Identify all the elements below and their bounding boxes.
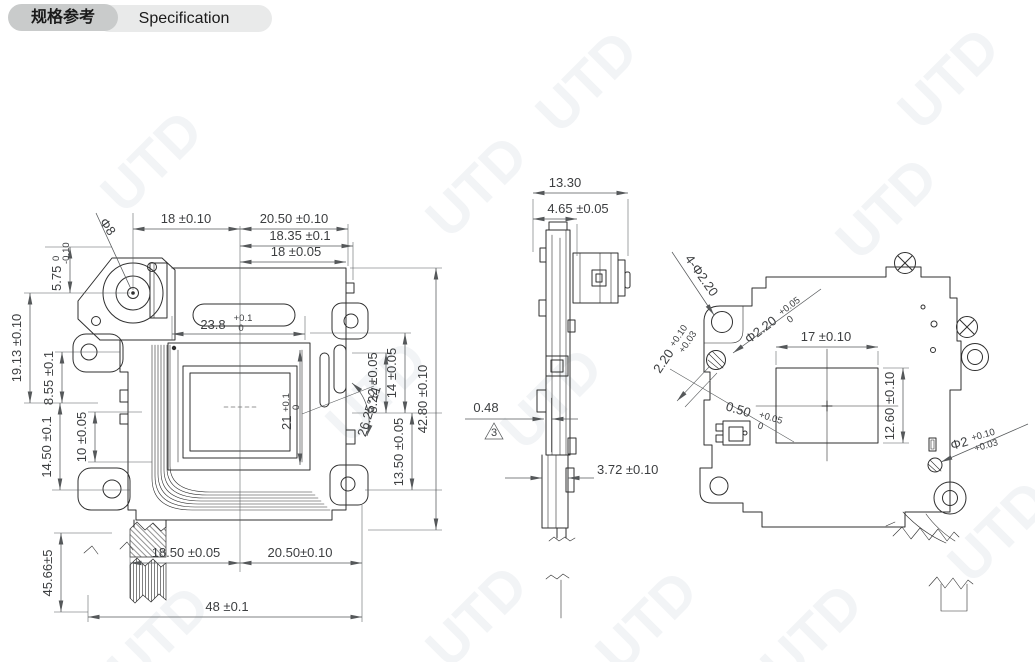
screw-top <box>895 253 916 274</box>
dim-back-050-lo: 0 <box>756 421 764 433</box>
ear-bottom-left <box>78 468 130 510</box>
dim-left-10: 10 ±0.05 <box>74 412 89 463</box>
dim-left-855: 8.55 ±0.1 <box>41 351 56 405</box>
dim-left-575-lo: -0.10 <box>61 242 72 264</box>
dim-side-372: 3.72 ±0.10 <box>597 462 658 477</box>
dim-left-1450: 14.50 ±0.1 <box>39 416 54 477</box>
watermark: UTD <box>583 558 709 662</box>
ear-hole-bottom-left <box>710 477 728 495</box>
dim-back-phi220: Φ2.20 <box>742 313 780 346</box>
dim-side-048: 0.48 <box>473 400 498 415</box>
side-motor <box>573 253 630 303</box>
engineering-drawing: UTD UTD UTD UTD UTD UTD UTD UTD UTD UTD … <box>0 0 1035 662</box>
dim-mid-21: 21 <box>279 416 294 430</box>
pin-hole-hatched <box>707 351 726 370</box>
dim-bot-1850: 18.50 ±0.05 <box>152 545 221 560</box>
watermark: UTD <box>523 18 649 144</box>
dim-back-1260: 12.60 ±0.10 <box>882 372 897 441</box>
watermark: UTD <box>88 98 214 224</box>
connector <box>716 421 750 445</box>
ear-bottom-right <box>330 465 368 505</box>
motor-bracket <box>78 258 175 340</box>
back-view-labels: 4-Φ2.20 Φ2.20 +0.05 0 2.20 +0.10 +0.03 1… <box>650 252 999 461</box>
dim-phi8: Φ8 <box>97 215 119 238</box>
screw-right <box>957 317 978 338</box>
dim-top-18: 18 ±0.10 <box>161 211 212 226</box>
flex-ribbon <box>152 345 330 510</box>
dim-mid-21-lo: 0 <box>291 405 302 410</box>
dim-side-1330: 13.30 <box>549 175 582 190</box>
watermark: UTD <box>823 145 949 271</box>
datum-3-label: 3 <box>491 427 497 439</box>
dim-back-17: 17 ±0.10 <box>801 329 852 344</box>
dim-top-1835: 18.35 ±0.1 <box>269 228 330 243</box>
dim-right-14: 14 ±0.05 <box>384 348 399 399</box>
dim-top-2050: 20.50 ±0.10 <box>260 211 329 226</box>
corner-hole <box>712 312 733 333</box>
dim-back-phi2: Φ2 <box>949 434 970 453</box>
watermark: UTD <box>885 15 1011 141</box>
dim-back-phi220-lo: 0 <box>785 314 796 326</box>
dim-bot-48: 48 ±0.1 <box>205 599 248 614</box>
dim-top-18b: 18 ±0.05 <box>271 244 322 259</box>
watermark: UTD <box>413 123 539 249</box>
ear-top-right <box>332 303 368 339</box>
back-view-dimensions <box>670 252 1028 462</box>
dim-bot-2050: 20.50±0.10 <box>268 545 333 560</box>
side-foot <box>542 455 568 528</box>
ear-right <box>962 344 989 371</box>
alignment-hole-phi2 <box>928 458 942 472</box>
watermark: UTD <box>413 553 539 662</box>
dim-slot-238-lo: 0 <box>238 323 243 334</box>
dim-left-575: 5.75 <box>49 266 64 291</box>
dim-slot-238: 23.8 <box>200 317 225 332</box>
dim-left-4566: 45.66±5 <box>40 550 55 597</box>
dim-left-1913: 19.13 ±0.10 <box>9 314 24 383</box>
watermark: UTD <box>748 571 874 662</box>
dim-back-220: 2.20 <box>650 346 677 375</box>
dim-side-465: 4.65 ±0.05 <box>547 201 608 216</box>
dim-back-050: 0.50 <box>724 399 753 421</box>
front-view-labels: Φ8 18 ±0.10 20.50 ±0.10 18.35 ±0.1 18 ±0… <box>9 211 430 614</box>
spec-drawing-page: Specification 规格参考 UTD UTD UTD UTD UTD U… <box>0 0 1035 662</box>
dim-right-4280: 42.80 ±0.10 <box>415 365 430 434</box>
main-plate-outline <box>100 268 346 520</box>
dim-right-1350: 13.50 ±0.05 <box>391 418 406 487</box>
watermark-layer: UTD UTD UTD UTD UTD UTD UTD UTD UTD UTD … <box>88 15 1035 662</box>
